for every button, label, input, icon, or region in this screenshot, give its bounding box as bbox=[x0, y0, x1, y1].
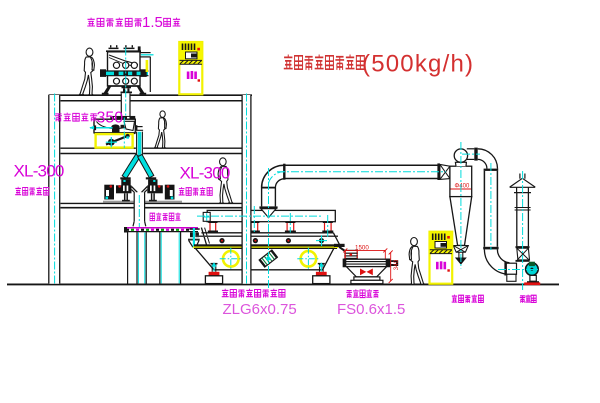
svg-text:Φ400: Φ400 bbox=[455, 184, 470, 190]
svg-text:1500: 1500 bbox=[355, 244, 369, 251]
svg-text:FS0.6x1.5: FS0.6x1.5 bbox=[337, 301, 405, 318]
svg-text:XL-300: XL-300 bbox=[180, 164, 230, 183]
svg-text:340: 340 bbox=[393, 259, 400, 270]
svg-text:ZLG6x0.75: ZLG6x0.75 bbox=[223, 301, 297, 318]
svg-text:XL-300: XL-300 bbox=[14, 162, 64, 181]
svg-text:350: 350 bbox=[97, 110, 124, 127]
svg-text:(500kg/h): (500kg/h) bbox=[362, 51, 474, 78]
svg-text:1.5: 1.5 bbox=[142, 14, 163, 31]
